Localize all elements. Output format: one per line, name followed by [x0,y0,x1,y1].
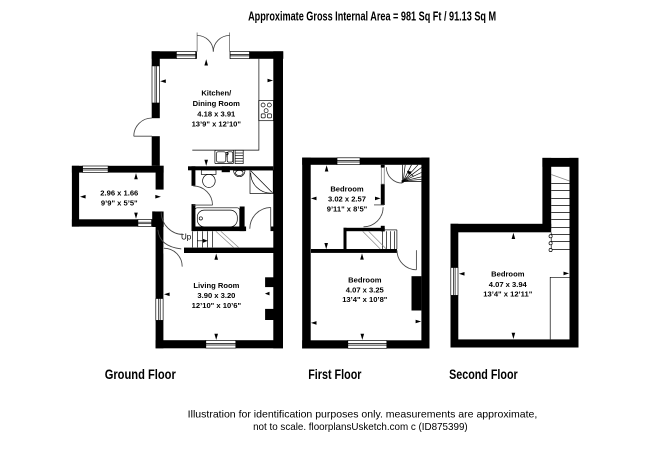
svg-text:Ground Floor: Ground Floor [105,367,177,382]
svg-text:13’4" x 10’8": 13’4" x 10’8" [342,295,388,304]
svg-text:Kitchen/: Kitchen/ [201,88,232,97]
svg-text:3.02 x 2.57: 3.02 x 2.57 [328,194,366,203]
svg-text:13’4" x 12’11": 13’4" x 12’11" [483,290,532,299]
svg-text:Illustration for identificatio: Illustration for identification purposes… [188,409,538,420]
svg-text:Bedroom: Bedroom [330,185,364,194]
svg-text:9’11" x 8’5": 9’11" x 8’5" [327,205,368,214]
svg-text:12’10" x 10’6": 12’10" x 10’6" [192,301,242,310]
svg-text:2.96 x 1.66: 2.96 x 1.66 [100,188,138,197]
svg-text:Up: Up [181,232,192,241]
svg-text:4.07 x 3.94: 4.07 x 3.94 [489,280,528,289]
svg-text:4.07 x 3.25: 4.07 x 3.25 [346,286,385,295]
svg-text:Second Floor: Second Floor [449,367,518,382]
svg-text:not to scale. floorplansUsketc: not to scale. floorplansUsketch.com c (I… [253,422,468,433]
svg-text:9’9" x 5’5": 9’9" x 5’5" [101,199,138,208]
svg-text:Bedroom: Bedroom [348,276,382,285]
svg-text:Approximate Gross Internal Are: Approximate Gross Internal Area = 981 Sq… [248,8,496,23]
svg-text:4.18 x 3.91: 4.18 x 3.91 [197,109,236,118]
svg-text:Bedroom: Bedroom [491,269,525,278]
svg-text:3.90 x 3.20: 3.90 x 3.20 [197,291,235,300]
svg-text:13’9" x 12’10": 13’9" x 12’10" [192,119,242,128]
svg-text:First Floor: First Floor [308,367,362,382]
svg-text:Living Room: Living Room [193,281,239,290]
svg-text:Dining Room: Dining Room [193,99,240,108]
